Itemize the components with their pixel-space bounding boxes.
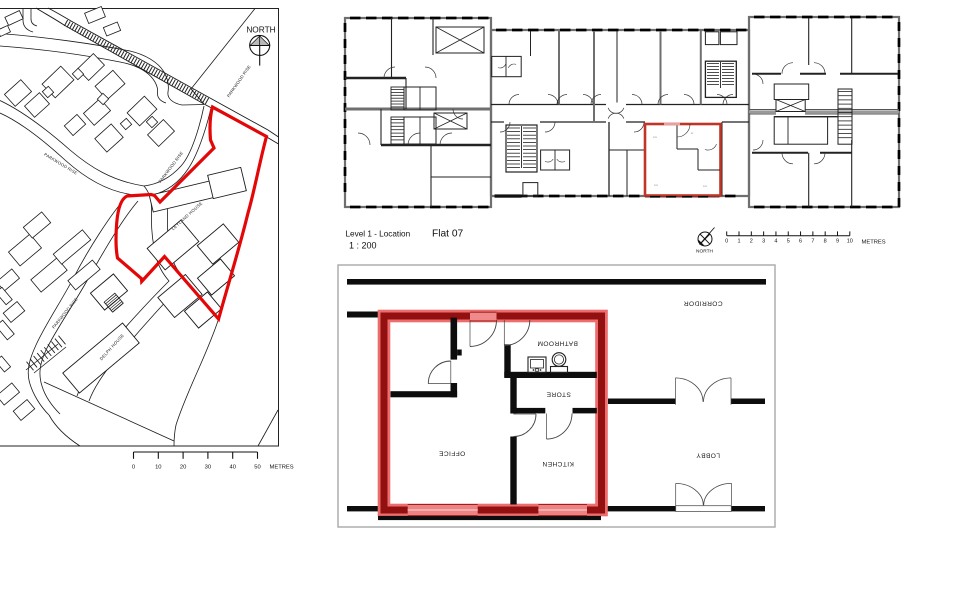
svg-text:NORTH: NORTH	[246, 25, 275, 35]
svg-text:9: 9	[836, 239, 839, 245]
svg-text:CORRIDOR: CORRIDOR	[683, 300, 722, 307]
svg-text:0: 0	[725, 239, 728, 245]
svg-text:7: 7	[811, 239, 814, 245]
svg-text:Flat 07: Flat 07	[432, 229, 463, 240]
svg-text:40: 40	[229, 465, 235, 471]
svg-text:BATHROOM: BATHROOM	[537, 340, 578, 347]
svg-text:xxx: xxx	[653, 136, 658, 139]
svg-text:30: 30	[205, 465, 211, 471]
svg-text:OFFICE: OFFICE	[439, 450, 466, 457]
svg-text:50: 50	[254, 465, 260, 471]
svg-text:LOBBY: LOBBY	[696, 452, 720, 459]
svg-text:Level 1 - Location: Level 1 - Location	[346, 230, 411, 239]
svg-text:xx: xx	[691, 132, 694, 135]
svg-text:xxx: xxx	[703, 185, 708, 188]
svg-text:3: 3	[762, 239, 765, 245]
svg-text:5: 5	[787, 239, 790, 245]
svg-text:NORTH: NORTH	[696, 249, 714, 255]
svg-text:1: 1	[737, 239, 740, 245]
svg-text:2: 2	[750, 239, 753, 245]
svg-text:10: 10	[155, 465, 161, 471]
svg-text:METRES: METRES	[270, 465, 294, 471]
svg-text:10: 10	[847, 239, 853, 245]
svg-text:METRES: METRES	[862, 240, 886, 246]
svg-text:STORE: STORE	[546, 391, 571, 398]
svg-text:6: 6	[799, 239, 802, 245]
svg-text:xxx: xxx	[654, 184, 659, 187]
svg-text:8: 8	[824, 239, 827, 245]
svg-text:1 : 200: 1 : 200	[349, 241, 377, 251]
svg-text:KITCHEN: KITCHEN	[542, 460, 574, 467]
svg-text:0: 0	[132, 465, 135, 471]
svg-text:20: 20	[180, 465, 186, 471]
svg-text:4: 4	[774, 239, 777, 245]
